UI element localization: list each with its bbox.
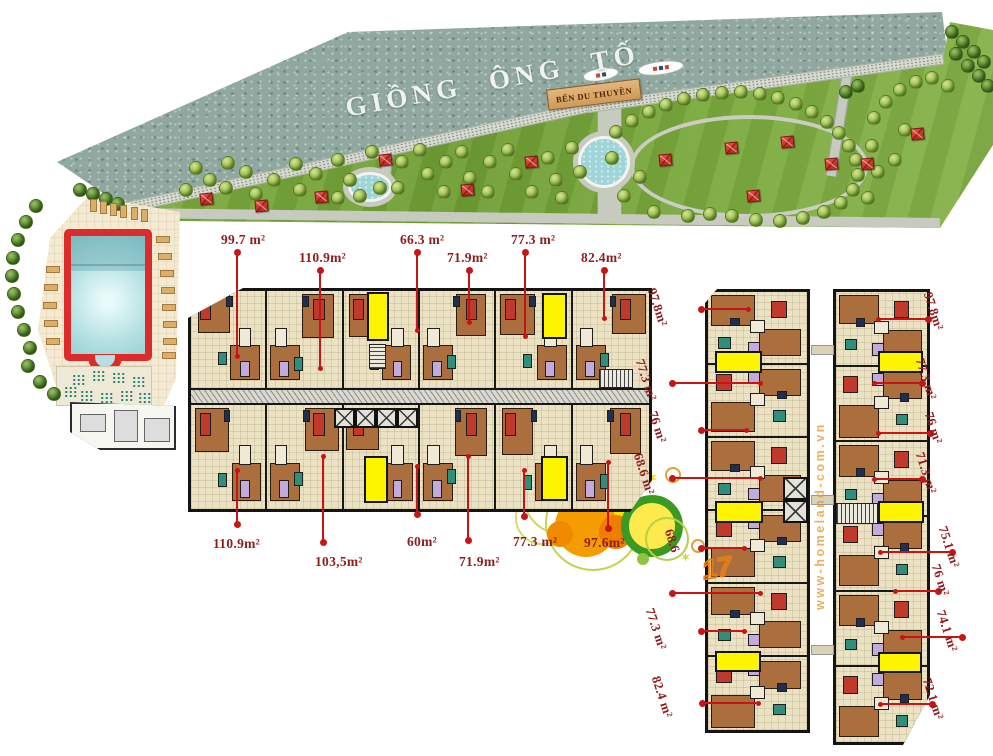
lounge-chair-icon <box>43 302 57 309</box>
room <box>523 354 532 368</box>
pavilion-icon <box>860 157 874 170</box>
area-label: 66.3 m² <box>400 232 444 248</box>
tree-icon <box>909 75 923 89</box>
lounge-chair-icon <box>158 253 172 260</box>
star-icon: ✶ <box>681 551 690 564</box>
room <box>607 410 614 421</box>
leader-dot <box>669 380 676 387</box>
room <box>730 318 740 327</box>
room <box>303 410 310 421</box>
tree-icon <box>605 151 619 165</box>
pavilion-icon <box>658 153 672 166</box>
room <box>453 296 460 307</box>
room <box>718 483 731 494</box>
leader-dot <box>601 267 608 274</box>
area-label: 103,5m² <box>315 554 363 570</box>
room <box>580 445 593 466</box>
elevator-icon <box>376 408 397 428</box>
tree-icon <box>343 173 357 187</box>
room <box>839 555 879 587</box>
lounge-chair-icon <box>161 287 175 294</box>
room <box>393 480 403 498</box>
tree-icon <box>647 205 661 219</box>
room <box>466 413 477 436</box>
highlighted-unit <box>878 501 924 523</box>
tree-icon <box>267 173 281 187</box>
room <box>839 706 879 737</box>
tree-icon <box>501 143 515 157</box>
highlighted-unit <box>715 651 761 672</box>
room <box>874 621 889 634</box>
lounge-chair-icon <box>44 284 58 291</box>
tree-icon <box>977 55 991 69</box>
room <box>466 299 477 320</box>
room <box>771 593 787 610</box>
pavilion-icon <box>460 183 474 196</box>
room <box>80 414 106 432</box>
room <box>843 676 858 694</box>
watermark-text: www-homeland-com.vn <box>807 390 833 642</box>
table-cluster-icon <box>138 392 151 404</box>
area-label: 74.1 m² <box>933 608 961 654</box>
leader-dot <box>522 249 529 256</box>
room <box>718 629 731 640</box>
pavilion-icon <box>314 190 328 203</box>
tree-icon <box>617 189 631 203</box>
tree-icon <box>541 151 555 165</box>
tree-icon <box>867 111 881 125</box>
tree-icon <box>817 205 831 219</box>
tree-icon <box>925 71 939 85</box>
room <box>839 405 879 438</box>
area-label: 77.3 m² <box>511 232 555 248</box>
room <box>750 466 766 479</box>
tree-icon <box>565 141 579 155</box>
clubhouse-floorplan <box>70 402 176 450</box>
room <box>275 328 288 347</box>
highlighted-unit <box>367 292 389 341</box>
lounge-chair-icon <box>156 236 170 243</box>
tree-icon <box>677 92 691 106</box>
tree-icon <box>373 181 387 195</box>
tree-icon <box>11 305 25 319</box>
apartment-unit <box>191 405 267 509</box>
tree-icon <box>771 91 785 105</box>
room <box>240 361 250 377</box>
tree-icon <box>23 341 37 355</box>
room <box>505 413 516 436</box>
room <box>843 376 858 394</box>
tree-icon <box>659 98 673 112</box>
room <box>427 328 440 347</box>
tree-icon <box>481 185 495 199</box>
tree-icon <box>609 125 623 139</box>
room <box>896 564 908 576</box>
room <box>874 546 889 559</box>
room <box>716 374 732 391</box>
room <box>620 413 631 436</box>
room <box>872 523 884 536</box>
room <box>279 480 289 498</box>
pavilion-icon <box>746 189 760 202</box>
lounge-chair-icon <box>120 205 127 218</box>
tree-icon <box>851 79 865 93</box>
tree-icon <box>483 155 497 169</box>
tree-icon <box>879 95 893 109</box>
table-cluster-icon <box>72 374 85 386</box>
room <box>759 621 801 648</box>
central-corridor <box>191 388 649 405</box>
room <box>523 475 532 490</box>
room <box>900 543 909 552</box>
tree-icon <box>395 155 409 169</box>
tree-icon <box>715 86 729 100</box>
area-label: 77.3 m² <box>642 606 670 652</box>
highlighted-unit <box>715 351 762 373</box>
room <box>900 393 909 402</box>
leader-dot <box>414 511 421 518</box>
room <box>114 410 138 442</box>
apartment-unit <box>836 367 927 442</box>
sketch-17: 17 <box>700 551 735 587</box>
tree-icon <box>203 173 217 187</box>
room <box>711 695 755 728</box>
lounge-chair-icon <box>90 199 97 212</box>
apartment-unit <box>836 517 927 592</box>
room <box>239 328 252 347</box>
apartment-unit <box>836 667 927 742</box>
tree-icon <box>642 105 656 119</box>
room <box>894 601 909 619</box>
room <box>750 393 766 406</box>
tree-icon <box>5 269 19 283</box>
room <box>226 296 233 307</box>
stairs-icon <box>599 369 633 388</box>
tree-icon <box>893 83 907 97</box>
room <box>432 480 442 498</box>
site-plan-canvas: ✶ ✶ ✶ www-homeland-com.vn 17 GIỒNG ÔNG T… <box>0 0 993 756</box>
room <box>874 471 889 484</box>
tree-icon <box>437 185 451 199</box>
highlighted-unit <box>715 501 763 523</box>
room <box>730 464 740 473</box>
tree-icon <box>549 173 563 187</box>
highlighted-unit <box>541 456 568 501</box>
elevator-icon <box>783 477 808 500</box>
tree-icon <box>888 153 902 167</box>
room <box>773 556 786 567</box>
area-label: 60m² <box>407 534 437 550</box>
room <box>777 683 787 692</box>
tree-icon <box>861 191 875 205</box>
leader-dot <box>949 549 956 556</box>
pavilion-icon <box>780 135 794 148</box>
room <box>773 410 786 421</box>
tree-icon <box>681 209 695 223</box>
table-cluster-icon <box>100 392 113 404</box>
room <box>750 539 766 552</box>
tree-icon <box>703 207 717 221</box>
room <box>531 410 538 421</box>
table-cluster-icon <box>132 376 145 388</box>
lounge-chair-icon <box>131 207 138 220</box>
tree-icon <box>17 323 31 337</box>
leader-dot <box>699 700 706 707</box>
room <box>750 686 766 699</box>
pavilion-icon <box>524 155 538 168</box>
lounge-chair-icon <box>100 201 107 214</box>
tree-icon <box>633 170 647 184</box>
highlighted-unit <box>364 456 388 503</box>
room <box>900 694 909 703</box>
room <box>447 355 456 369</box>
boat-cabin <box>653 67 658 72</box>
tree-icon <box>47 387 61 401</box>
elevator-icon <box>355 408 376 428</box>
room <box>620 299 631 320</box>
area-label: 71.9m² <box>447 250 488 266</box>
room <box>856 318 865 327</box>
room <box>894 301 909 319</box>
apartment-unit <box>191 291 267 388</box>
tree-icon <box>33 375 47 389</box>
lounge-chair-icon <box>160 270 174 277</box>
lounge-chair-icon <box>141 209 148 222</box>
tree-icon <box>832 126 846 140</box>
corridor-bridge <box>811 345 834 355</box>
room <box>447 469 456 484</box>
tree-icon <box>6 251 20 265</box>
room <box>845 339 857 351</box>
tree-icon <box>455 145 469 159</box>
leader-dot <box>698 306 705 313</box>
room <box>771 301 787 318</box>
room <box>218 473 227 488</box>
leader-dot <box>465 537 472 544</box>
room <box>239 445 252 466</box>
tree-icon <box>805 105 819 119</box>
tree-icon <box>7 287 21 301</box>
tree-icon <box>189 161 203 175</box>
lounge-chair-icon <box>46 266 60 273</box>
room <box>313 413 324 436</box>
tree-icon <box>421 167 435 181</box>
lounge-chair-icon <box>44 320 58 327</box>
swimming-pool <box>64 229 152 361</box>
leader-dot <box>234 249 241 256</box>
tree-icon <box>725 209 739 223</box>
tree-icon <box>19 215 33 229</box>
pavilion-icon <box>824 157 838 170</box>
tree-icon <box>949 47 963 61</box>
room <box>777 391 787 400</box>
tree-icon <box>981 79 993 93</box>
apartment-unit <box>267 291 343 388</box>
leader-dot <box>698 427 705 434</box>
room <box>279 361 289 377</box>
elevator-icon <box>334 408 355 428</box>
apartment-unit <box>267 405 343 509</box>
table-cluster-icon <box>64 386 77 398</box>
apartment-unit <box>573 405 649 509</box>
area-label: 110.9m² <box>299 250 346 266</box>
stairs-icon <box>369 344 386 369</box>
area-label: 110.9m² <box>213 536 260 552</box>
room <box>353 299 364 320</box>
room <box>294 357 303 371</box>
room <box>218 352 227 366</box>
leader-dot <box>698 628 705 635</box>
room <box>505 299 516 320</box>
room <box>432 361 442 377</box>
room <box>896 715 908 727</box>
leader-dot <box>466 267 473 274</box>
stairs-icon <box>836 503 878 524</box>
central-building-floorplan <box>188 288 652 512</box>
lounge-chair-icon <box>163 321 177 328</box>
room <box>874 321 889 334</box>
room <box>896 414 908 426</box>
tree-icon <box>289 157 303 171</box>
room <box>224 410 231 421</box>
tree-icon <box>391 181 405 195</box>
room <box>773 704 786 716</box>
highlighted-unit <box>878 652 922 673</box>
room <box>294 472 303 487</box>
tree-icon <box>353 189 367 203</box>
room <box>748 634 761 647</box>
leader-dot <box>320 539 327 546</box>
boat-cabin <box>659 66 664 71</box>
leader-dot <box>929 701 936 708</box>
tree-icon <box>365 145 379 159</box>
highlighted-unit <box>878 351 923 373</box>
room <box>750 612 766 625</box>
room <box>777 537 787 546</box>
room <box>600 474 609 489</box>
pavilion-icon <box>254 199 268 212</box>
room <box>874 697 889 710</box>
leader-dot <box>317 267 324 274</box>
room <box>872 373 884 386</box>
room <box>275 445 288 466</box>
room <box>580 328 593 347</box>
tree-icon <box>820 115 834 129</box>
elevator-icon <box>783 500 808 523</box>
central-wing-bottom <box>191 405 649 509</box>
apartment-unit <box>708 365 807 438</box>
tree-icon <box>834 196 848 210</box>
tree-icon <box>525 185 539 199</box>
room <box>750 320 766 333</box>
tree-icon <box>842 139 856 153</box>
tree-icon <box>309 167 323 181</box>
pavilion-icon <box>910 127 924 140</box>
pavilion-icon <box>378 153 392 166</box>
table-cluster-icon <box>92 370 105 382</box>
tree-icon <box>219 181 233 195</box>
room <box>874 396 889 409</box>
room <box>240 480 250 498</box>
tree-icon <box>734 85 748 99</box>
lounge-chair-icon <box>110 203 117 216</box>
area-label: 82.4 m² <box>648 674 676 720</box>
room <box>610 296 617 307</box>
boat-cabin <box>665 65 670 70</box>
area-label: 99.7 m² <box>221 232 265 248</box>
room <box>200 413 211 436</box>
tree-icon <box>865 139 879 153</box>
leader-dot <box>959 634 966 641</box>
table-cluster-icon <box>120 390 133 402</box>
table-cluster-icon <box>80 390 93 402</box>
pavilion-icon <box>724 141 738 154</box>
tree-icon <box>331 191 345 205</box>
tree-icon <box>509 167 523 181</box>
room <box>718 337 731 348</box>
room <box>748 488 761 501</box>
lounge-chair-icon <box>162 352 176 359</box>
room <box>313 299 324 320</box>
leader-dot <box>935 588 942 595</box>
tree-icon <box>555 191 569 205</box>
tree-icon <box>789 97 803 111</box>
table-cluster-icon <box>112 372 125 384</box>
room <box>302 296 309 307</box>
room <box>391 445 404 466</box>
room <box>771 447 787 464</box>
room <box>600 353 609 367</box>
leader-dot <box>414 249 421 256</box>
lounge-chair-icon <box>163 338 177 345</box>
room <box>529 296 536 307</box>
tree-icon <box>625 114 639 128</box>
corridor-bridge <box>811 645 834 655</box>
tree-icon <box>796 211 810 225</box>
tree-icon <box>439 155 453 169</box>
lounge-chair-icon <box>162 304 176 311</box>
tree-icon <box>749 213 763 227</box>
room <box>585 480 595 498</box>
tree-icon <box>239 165 253 179</box>
room <box>845 639 857 651</box>
room <box>393 361 403 377</box>
room <box>845 489 857 501</box>
room <box>545 361 555 377</box>
pavilion-icon <box>199 192 213 205</box>
leader-dot <box>669 590 676 597</box>
apartment-unit <box>420 291 496 388</box>
room <box>391 328 404 347</box>
room <box>730 610 740 619</box>
room <box>144 418 170 442</box>
room <box>711 402 755 432</box>
tree-icon <box>221 156 235 170</box>
apartment-unit <box>420 405 496 509</box>
highlighted-unit <box>542 293 567 339</box>
room <box>427 445 440 466</box>
fountain-icon <box>578 136 630 188</box>
lounge-chair-icon <box>46 338 60 345</box>
room <box>856 468 865 477</box>
tree-icon <box>11 233 25 247</box>
tree-icon <box>941 79 955 93</box>
tree-icon <box>696 88 710 102</box>
room <box>759 329 801 356</box>
area-label: 75.1 m² <box>935 524 963 570</box>
tree-icon <box>179 183 193 197</box>
tree-icon <box>293 183 307 197</box>
